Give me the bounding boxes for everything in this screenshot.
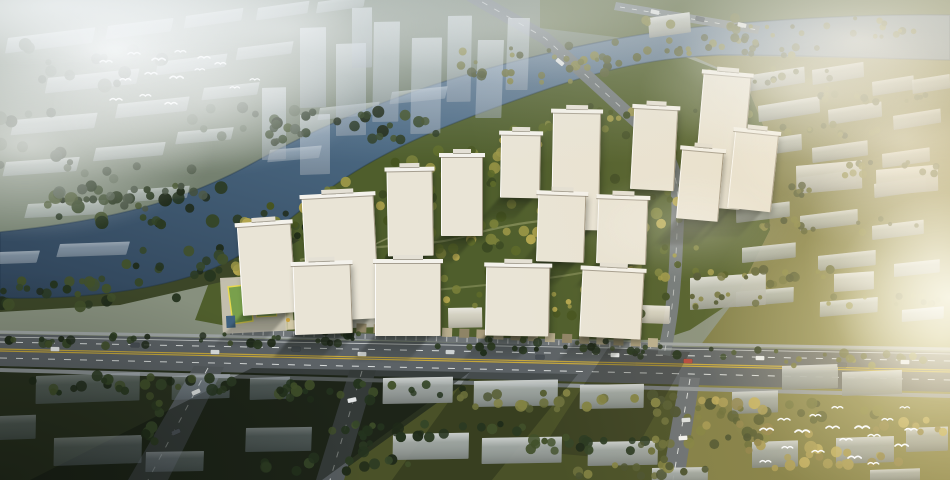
tree bbox=[658, 108, 662, 112]
tree bbox=[510, 53, 515, 58]
tree bbox=[550, 217, 556, 223]
tree bbox=[600, 68, 609, 77]
tree bbox=[607, 115, 614, 122]
tree bbox=[499, 137, 505, 143]
tree bbox=[405, 198, 411, 204]
tree bbox=[318, 247, 328, 257]
tree bbox=[102, 284, 112, 294]
tree bbox=[872, 405, 883, 416]
tree bbox=[142, 206, 148, 212]
tree bbox=[560, 199, 569, 208]
tree bbox=[360, 251, 367, 258]
tree bbox=[494, 312, 502, 320]
tree bbox=[854, 93, 860, 99]
car bbox=[130, 343, 139, 348]
tree bbox=[758, 295, 762, 299]
retail-podium-unit bbox=[631, 337, 641, 346]
bottom-left-ghost bbox=[245, 427, 312, 452]
tree bbox=[89, 195, 97, 203]
tree bbox=[676, 216, 683, 223]
tree bbox=[484, 267, 494, 277]
tree bbox=[672, 134, 679, 141]
tree bbox=[421, 117, 429, 125]
tree bbox=[856, 221, 860, 225]
tree bbox=[894, 302, 898, 306]
tree bbox=[600, 437, 608, 445]
retail-podium-unit bbox=[493, 330, 503, 339]
tree bbox=[269, 250, 280, 261]
tree bbox=[44, 201, 52, 209]
tree bbox=[398, 265, 409, 276]
tree bbox=[433, 145, 444, 156]
tree bbox=[664, 48, 669, 53]
tree bbox=[283, 211, 289, 217]
tree bbox=[936, 297, 941, 302]
tree bbox=[391, 158, 400, 167]
tree bbox=[821, 274, 826, 279]
tree bbox=[46, 108, 56, 118]
tree bbox=[589, 122, 594, 127]
tree bbox=[454, 181, 463, 190]
tree bbox=[451, 228, 461, 238]
tree bbox=[120, 201, 128, 209]
tree bbox=[240, 125, 247, 132]
tree bbox=[349, 121, 360, 132]
tree bbox=[791, 216, 798, 223]
tree bbox=[81, 169, 89, 177]
tree bbox=[764, 222, 770, 228]
tree bbox=[838, 132, 843, 137]
tree bbox=[10, 337, 16, 343]
tree bbox=[487, 424, 498, 435]
tree bbox=[231, 261, 241, 271]
tree bbox=[452, 285, 461, 294]
tree bbox=[610, 174, 620, 184]
tree bbox=[187, 114, 198, 125]
tree bbox=[101, 341, 110, 350]
tree bbox=[719, 44, 725, 50]
tree bbox=[337, 231, 347, 241]
tree bbox=[175, 384, 181, 390]
tree bbox=[830, 293, 837, 300]
tree bbox=[267, 202, 275, 210]
tree bbox=[190, 271, 199, 280]
tree bbox=[309, 109, 317, 117]
tree bbox=[496, 147, 506, 157]
tree bbox=[330, 277, 340, 287]
tree bbox=[825, 69, 829, 73]
tree bbox=[511, 246, 521, 256]
tree bbox=[98, 276, 105, 283]
tree bbox=[614, 309, 623, 318]
ghost-tall bbox=[352, 7, 372, 68]
tree bbox=[752, 131, 759, 138]
tree bbox=[39, 337, 45, 343]
tree bbox=[333, 117, 341, 125]
tree bbox=[420, 420, 429, 429]
tree bbox=[658, 344, 663, 349]
tree bbox=[823, 92, 829, 98]
tree bbox=[262, 219, 271, 228]
aerial-rendering-canvas bbox=[0, 0, 950, 480]
retail-podium-unit bbox=[408, 326, 418, 335]
tree bbox=[796, 189, 801, 194]
tree bbox=[651, 398, 661, 408]
car bbox=[837, 363, 846, 368]
tree bbox=[599, 53, 606, 60]
tree bbox=[357, 268, 369, 280]
tree bbox=[709, 347, 714, 352]
tree bbox=[131, 336, 137, 342]
tree bbox=[497, 421, 503, 427]
tree bbox=[636, 309, 645, 318]
tree bbox=[354, 291, 361, 298]
tree bbox=[275, 271, 283, 279]
tree bbox=[56, 213, 63, 220]
tree bbox=[637, 472, 645, 480]
tree bbox=[597, 107, 603, 113]
tree bbox=[730, 13, 740, 23]
tree bbox=[633, 53, 642, 62]
tree bbox=[572, 127, 582, 137]
tree bbox=[242, 218, 253, 229]
tree bbox=[933, 163, 940, 170]
tree bbox=[552, 55, 557, 60]
tree bbox=[939, 428, 947, 436]
tree bbox=[693, 109, 697, 113]
tree bbox=[778, 73, 786, 81]
tree bbox=[526, 291, 533, 298]
tree bbox=[754, 346, 761, 353]
tree bbox=[312, 304, 320, 312]
tree bbox=[520, 337, 527, 344]
tree bbox=[472, 174, 483, 185]
tree bbox=[552, 307, 557, 312]
tree bbox=[791, 363, 797, 369]
tree bbox=[741, 36, 748, 43]
tree bbox=[292, 221, 299, 228]
tree bbox=[302, 305, 310, 313]
tree bbox=[712, 123, 718, 129]
tree bbox=[742, 49, 749, 56]
tree bbox=[731, 350, 736, 355]
tree bbox=[846, 162, 853, 169]
tree bbox=[385, 456, 393, 464]
tree bbox=[25, 110, 33, 118]
tree bbox=[388, 381, 397, 390]
tree bbox=[805, 78, 812, 85]
bottom-slabs bbox=[383, 377, 453, 404]
tree bbox=[728, 131, 733, 136]
tree bbox=[507, 78, 513, 84]
tree bbox=[859, 228, 867, 236]
tree bbox=[155, 262, 164, 271]
tree bbox=[648, 447, 655, 454]
tree bbox=[490, 181, 496, 187]
tree bbox=[488, 338, 493, 343]
tree bbox=[539, 80, 544, 85]
tree bbox=[36, 288, 43, 295]
tree bbox=[517, 400, 527, 410]
tree bbox=[333, 329, 339, 335]
tree bbox=[878, 216, 884, 222]
tree bbox=[536, 304, 541, 309]
tree bbox=[930, 170, 938, 178]
tree bbox=[633, 198, 645, 210]
tree bbox=[914, 223, 919, 228]
tree bbox=[189, 188, 198, 197]
tree bbox=[346, 330, 355, 339]
tree bbox=[541, 438, 548, 445]
tree bbox=[630, 394, 639, 403]
tree bbox=[156, 379, 167, 390]
tree bbox=[560, 228, 570, 238]
tree bbox=[640, 222, 650, 232]
tree bbox=[826, 265, 835, 274]
tree bbox=[743, 433, 751, 441]
tree bbox=[853, 16, 857, 20]
tree bbox=[831, 91, 838, 98]
scene-base-layer bbox=[0, 0, 950, 480]
tree bbox=[133, 162, 141, 170]
tree bbox=[113, 80, 121, 88]
tree bbox=[267, 339, 276, 348]
bottom-left-ghost bbox=[145, 451, 204, 472]
tree bbox=[503, 228, 511, 236]
tree bbox=[206, 384, 218, 396]
tree bbox=[519, 226, 530, 237]
tree bbox=[217, 254, 228, 265]
retail-podium-unit bbox=[391, 325, 401, 334]
tree bbox=[17, 141, 28, 152]
tree bbox=[584, 470, 593, 479]
tree bbox=[413, 236, 421, 244]
tree bbox=[215, 181, 228, 194]
tree bbox=[784, 454, 791, 461]
tree bbox=[727, 410, 738, 421]
tree bbox=[717, 272, 726, 281]
tree bbox=[352, 209, 360, 217]
tree bbox=[353, 257, 364, 268]
tree bbox=[699, 121, 708, 130]
tree bbox=[566, 299, 572, 305]
tree bbox=[690, 294, 695, 299]
tree bbox=[321, 328, 329, 336]
tree bbox=[734, 93, 742, 101]
tree bbox=[693, 304, 699, 310]
tree bbox=[919, 293, 925, 299]
tree bbox=[725, 434, 731, 440]
retail-podium-unit bbox=[562, 334, 572, 343]
tree bbox=[337, 391, 345, 399]
tree bbox=[637, 353, 643, 359]
tree bbox=[784, 360, 788, 364]
car bbox=[210, 350, 219, 355]
tree bbox=[297, 131, 303, 137]
tree bbox=[66, 335, 75, 344]
tree bbox=[178, 183, 185, 190]
tree bbox=[829, 121, 836, 128]
ghost-rows bbox=[56, 242, 130, 258]
tree bbox=[387, 122, 393, 128]
tree bbox=[567, 246, 574, 253]
tree bbox=[761, 192, 768, 199]
right-solid bbox=[876, 165, 938, 196]
tree bbox=[846, 302, 853, 309]
tree bbox=[474, 158, 481, 165]
kindergarten-shape bbox=[286, 318, 290, 322]
tree bbox=[805, 430, 813, 438]
tree bbox=[370, 261, 382, 273]
retail-podium-unit bbox=[613, 336, 623, 345]
tree bbox=[144, 186, 151, 193]
tree bbox=[672, 350, 681, 359]
tree bbox=[752, 300, 759, 307]
tree bbox=[779, 47, 784, 52]
tree bbox=[172, 183, 178, 189]
tree bbox=[106, 192, 115, 201]
tree bbox=[843, 449, 851, 457]
tree bbox=[748, 51, 754, 57]
tree bbox=[16, 284, 23, 291]
tree bbox=[19, 38, 32, 51]
tree bbox=[260, 461, 272, 473]
tree bbox=[674, 261, 681, 268]
tree bbox=[420, 174, 430, 184]
tree bbox=[369, 458, 380, 469]
tree bbox=[670, 406, 681, 417]
tree bbox=[281, 225, 288, 232]
tree bbox=[265, 239, 272, 246]
tree bbox=[627, 347, 635, 355]
tree bbox=[664, 188, 671, 195]
tree bbox=[358, 112, 365, 119]
tree bbox=[592, 206, 600, 214]
tree bbox=[252, 277, 264, 289]
tree bbox=[166, 377, 175, 386]
tree bbox=[643, 46, 652, 55]
tree bbox=[731, 398, 743, 410]
tree bbox=[788, 183, 795, 190]
tree bbox=[702, 466, 709, 473]
tree bbox=[341, 426, 350, 435]
tree bbox=[565, 42, 574, 51]
tree bbox=[271, 139, 279, 147]
tree bbox=[367, 134, 377, 144]
tree bbox=[79, 278, 85, 284]
tree bbox=[253, 340, 262, 349]
tree bbox=[406, 155, 418, 167]
tree bbox=[717, 102, 725, 110]
tree bbox=[708, 269, 714, 275]
tree bbox=[140, 247, 147, 254]
tree bbox=[694, 245, 699, 250]
tree bbox=[745, 447, 752, 454]
bottom-slabs bbox=[870, 468, 920, 480]
tree bbox=[874, 127, 881, 134]
tree bbox=[568, 79, 573, 84]
tree bbox=[719, 407, 727, 415]
tree bbox=[376, 201, 385, 210]
retail-podium-unit bbox=[339, 323, 349, 332]
tree bbox=[92, 370, 103, 381]
tree bbox=[496, 212, 506, 222]
tree bbox=[643, 345, 648, 350]
tree bbox=[898, 417, 909, 428]
tree bbox=[816, 269, 821, 274]
tree bbox=[469, 230, 475, 236]
tree bbox=[286, 394, 294, 402]
tree bbox=[770, 66, 776, 72]
tree bbox=[440, 170, 451, 181]
tree bbox=[396, 215, 406, 225]
tree bbox=[567, 310, 577, 320]
tree bbox=[726, 292, 730, 296]
tree bbox=[413, 431, 424, 442]
tree bbox=[576, 472, 583, 479]
tree bbox=[759, 425, 766, 432]
tree bbox=[823, 459, 833, 469]
tree bbox=[101, 378, 107, 384]
tree bbox=[669, 393, 677, 401]
tree bbox=[509, 125, 518, 134]
tree bbox=[383, 216, 393, 226]
tree bbox=[302, 213, 314, 225]
tree bbox=[228, 340, 234, 346]
tree bbox=[276, 335, 281, 340]
tree bbox=[360, 381, 367, 388]
tree bbox=[646, 170, 656, 180]
kindergarten-shape bbox=[226, 316, 236, 328]
tree bbox=[774, 349, 778, 353]
tree bbox=[610, 346, 615, 351]
tree bbox=[362, 426, 373, 437]
tree bbox=[663, 400, 673, 410]
tree bbox=[918, 95, 923, 100]
tree bbox=[5, 115, 17, 127]
tree bbox=[641, 350, 645, 354]
tree bbox=[292, 466, 302, 476]
tree bbox=[752, 39, 758, 45]
tree bbox=[162, 188, 169, 195]
tree bbox=[496, 241, 504, 249]
tree bbox=[653, 408, 662, 417]
tree bbox=[150, 437, 158, 445]
tree bbox=[289, 105, 300, 116]
tree bbox=[603, 338, 609, 344]
tree bbox=[686, 46, 691, 51]
tree bbox=[327, 340, 333, 346]
tree bbox=[512, 426, 522, 436]
tree bbox=[660, 456, 668, 464]
tree bbox=[155, 57, 164, 66]
tree bbox=[784, 128, 791, 135]
tree bbox=[459, 48, 467, 56]
tree bbox=[629, 437, 636, 444]
tree bbox=[314, 199, 325, 210]
tree bbox=[506, 293, 511, 298]
tree bbox=[299, 202, 310, 213]
tree bbox=[896, 293, 903, 300]
tree bbox=[372, 106, 384, 118]
retail-podium-unit bbox=[442, 328, 452, 337]
tree bbox=[563, 133, 572, 142]
tree bbox=[45, 65, 56, 76]
tree bbox=[595, 58, 599, 62]
tree bbox=[652, 436, 660, 444]
tree bbox=[626, 296, 632, 302]
tree bbox=[24, 285, 31, 292]
